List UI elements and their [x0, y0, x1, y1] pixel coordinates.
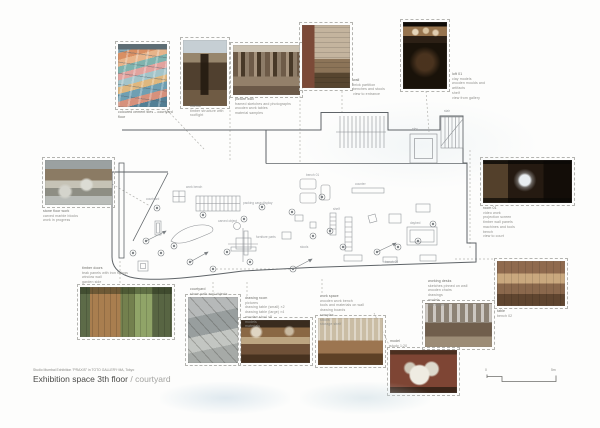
caption-model-note: modelstudy 1:20 — [390, 339, 422, 348]
photo-courtyard — [188, 297, 238, 363]
title-secondary: courtyard — [135, 374, 170, 384]
plan-label: stair — [444, 110, 450, 114]
caption-courtyard: courtyardstone path and objects — [190, 287, 236, 296]
elevator-shaft — [410, 134, 437, 163]
caption-tiled-floor: coloured cement tiles – courtyard floor — [118, 110, 180, 119]
photo-timber-doors — [80, 287, 172, 337]
exhibition-credit: Studio Mumbai Exhibition "PRAXIS" in TOT… — [33, 368, 171, 372]
plan-furniture — [138, 179, 437, 271]
caption-timber-doors: timber doorsteak panels with iron fittin… — [82, 266, 140, 285]
plan-label: bench 01 — [306, 174, 319, 178]
plan-label: daybed — [410, 222, 420, 226]
page-title: Exhibition space 3th floor / courtyard — [33, 374, 171, 384]
plan-label: work bench — [186, 186, 202, 190]
stair-treads — [336, 116, 463, 148]
plan-walls — [112, 113, 476, 280]
scale-zero-label: 0 — [485, 368, 487, 372]
caption-artifact-loft: loft 01clay modelswooden moulds and arti… — [452, 72, 498, 100]
photo-model — [390, 350, 457, 393]
scale-bar — [487, 375, 556, 382]
plan-label: packing case display — [243, 202, 272, 206]
photo-stone-floor — [45, 160, 112, 205]
caption-timber-interior: interiortimber structure with rooflight — [190, 104, 232, 118]
plan-label: stools — [300, 246, 308, 250]
photo-artifact-loft — [403, 22, 447, 89]
photo-tiled-floor — [118, 44, 167, 107]
caption-stone-floor: stone floor workcarved marble blockswork… — [43, 209, 107, 223]
plan-label: courtyard — [146, 198, 159, 202]
caption-studio-desks: working deskssketches pinned on wallwood… — [428, 279, 490, 307]
photo-picture-wall — [233, 45, 300, 95]
caption-brick-room: wallbrick partitionbenches and stoolsvie… — [353, 78, 395, 97]
caption-picture-wall: picture wallframed sketches and photogra… — [235, 97, 297, 116]
plan-label: counter — [355, 183, 366, 187]
title-block: Studio Mumbai Exhibition "PRAXIS" in TOT… — [33, 368, 171, 384]
title-separator: / — [130, 374, 132, 384]
photo-projection-room — [483, 160, 572, 203]
photo-timber-interior — [183, 40, 227, 106]
title-main: Exhibition space 3th floor — [33, 374, 128, 384]
photo-studio-desks — [425, 303, 492, 347]
plan-label: shelf — [333, 208, 340, 212]
caption-projection-room: room 01video workprojection screentimber… — [483, 206, 553, 239]
caption-drawing-room: drawing roompicturesdrawing table (small… — [245, 296, 307, 329]
caption-wooden-table: tablebench 02 — [497, 309, 547, 318]
scale-max-label: 5m — [551, 368, 556, 372]
caption-work-space: work spacewooden work benchtools and mat… — [320, 294, 380, 327]
plan-label: bench 03 — [385, 261, 398, 265]
plan-label: carved object — [218, 220, 237, 224]
presentation-board: coloured cement tiles – courtyard floor … — [0, 0, 600, 428]
photo-wooden-table — [497, 261, 565, 306]
plan-label: furniture parts — [256, 236, 276, 240]
photo-brick-room — [302, 25, 350, 88]
plan-label: elev. — [412, 128, 419, 132]
